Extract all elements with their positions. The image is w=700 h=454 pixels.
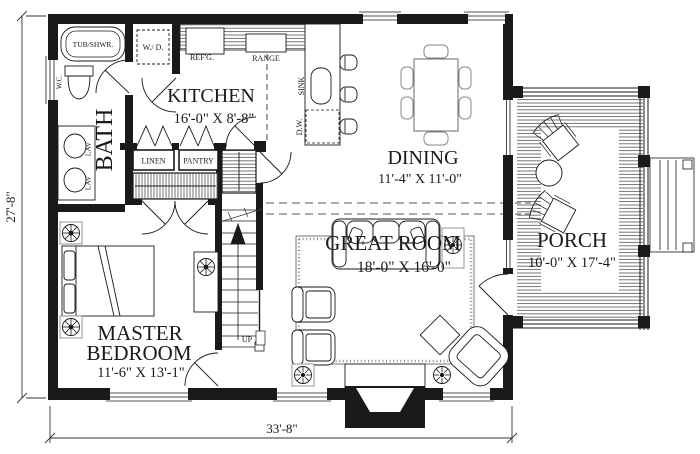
hall-closet xyxy=(222,150,256,193)
room-label-master-2: BEDROOM xyxy=(86,341,191,365)
window-dining-2 xyxy=(464,12,509,24)
overall-width-dimension: 33'-8" xyxy=(266,421,297,436)
room-dims-dining: 11'-4" X 11'-0" xyxy=(378,172,462,187)
refrigerator-label: REF'G. xyxy=(190,53,214,62)
kitchen-sink xyxy=(311,68,331,104)
window-dining-1 xyxy=(359,12,401,24)
room-label-bath: BATH xyxy=(92,109,118,172)
window-master-bedroom xyxy=(106,389,192,401)
room-label-kitchen: KITCHEN xyxy=(167,85,255,107)
armchair-2 xyxy=(292,330,335,365)
room-dims-master: 11'-6" X 13'-1" xyxy=(97,365,184,381)
overall-height-dimension: 27'-8" xyxy=(3,191,18,222)
nightstand-2 xyxy=(60,316,82,338)
porch-table xyxy=(536,160,562,186)
floor-plan-page: 27'-8" 33'-8" xyxy=(0,0,700,454)
porch-decking-bottom xyxy=(517,292,643,320)
porch-decking-right xyxy=(619,128,643,292)
dining-table xyxy=(414,59,458,131)
sink-label: SINK xyxy=(297,76,306,95)
room-label-great-room: GREAT ROOM xyxy=(325,231,461,255)
room-dims-porch: 10'-0" X 17'-4" xyxy=(528,255,616,271)
window-great-room-2 xyxy=(439,389,494,401)
stairs-up-label: UP xyxy=(242,335,253,344)
fireplace xyxy=(345,364,425,428)
corner-table-lamp xyxy=(292,364,314,386)
master-closet xyxy=(133,173,218,199)
room-dims-great-room: 18'-0" X 16'-0" xyxy=(357,259,451,276)
window-porch-wall-1 xyxy=(504,100,513,155)
room-label-porch: PORCH xyxy=(537,228,607,252)
hearth xyxy=(345,364,425,388)
range-label: RANGE xyxy=(252,54,280,63)
range xyxy=(246,34,286,52)
nightstand-1 xyxy=(60,222,82,244)
linen-label: LINEN xyxy=(142,157,166,166)
dresser xyxy=(194,252,218,312)
bed xyxy=(62,246,154,316)
tub-label: TUB/SHWR. xyxy=(73,40,114,49)
washer-dryer-label: W./ D. xyxy=(143,43,164,52)
round-table-lamp xyxy=(434,367,451,384)
room-dims-kitchen: 16'-0" X 8'-8" xyxy=(174,111,255,127)
window-porch-wall-2 xyxy=(504,240,513,268)
wc-label: W.C. xyxy=(56,75,64,89)
porch-steps xyxy=(650,158,694,252)
pantry-label: PANTRY xyxy=(183,157,214,166)
window-great-room-1 xyxy=(273,389,331,401)
bar-stools xyxy=(340,55,357,134)
armchair-1 xyxy=(292,287,335,322)
refrigerator xyxy=(186,28,224,54)
porch-decking-top xyxy=(517,97,643,128)
dishwasher-label: D.W. xyxy=(295,119,304,136)
floor-plan-drawing: 27'-8" 33'-8" xyxy=(0,0,700,454)
lav-label-2: LAV xyxy=(84,175,93,190)
room-label-dining: DINING xyxy=(387,147,458,169)
